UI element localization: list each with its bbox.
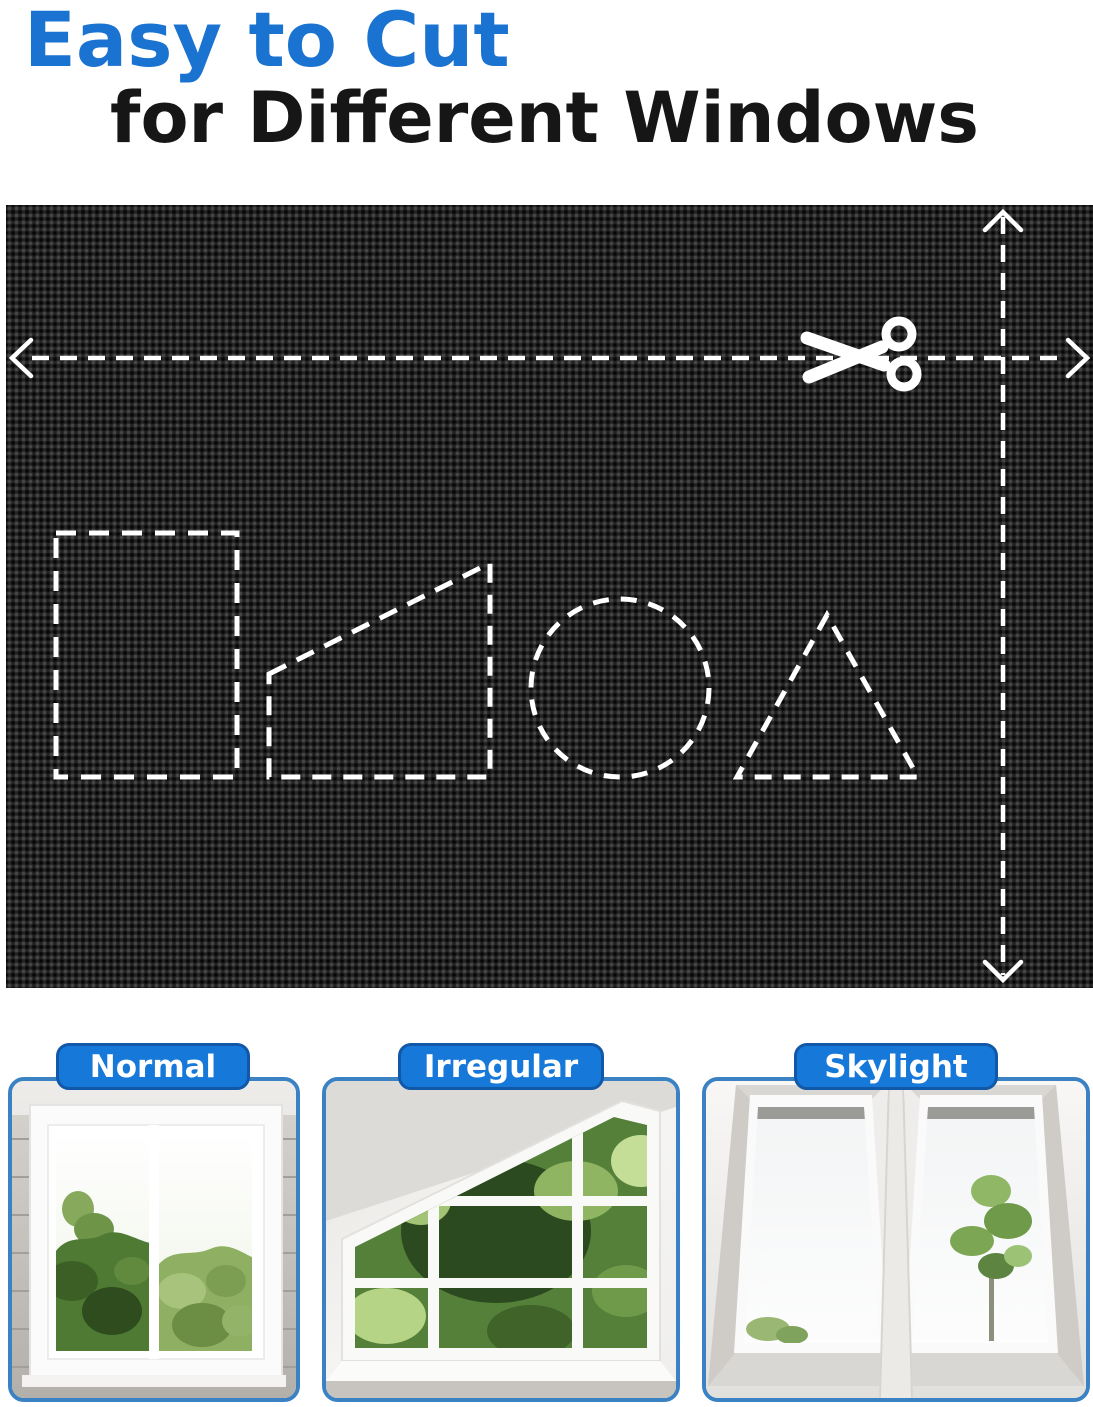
center-mullion — [149, 1125, 159, 1359]
cutout-circle — [531, 599, 709, 777]
skylight-right-glass — [906, 1101, 1056, 1351]
cutout-trapezoid — [269, 563, 490, 777]
card-skylight — [702, 1077, 1090, 1402]
tab-irregular-label: Irregular — [424, 1049, 578, 1085]
skylight-left-glass — [736, 1101, 886, 1351]
scissors-icon — [807, 321, 917, 387]
card-irregular — [322, 1077, 680, 1402]
title-line2: for Different Windows — [110, 76, 979, 160]
tab-skylight: Skylight — [794, 1043, 998, 1090]
normal-window-photo — [12, 1081, 296, 1398]
product-infographic: Easy to Cut for Different Windows — [0, 0, 1093, 1407]
tab-skylight-label: Skylight — [824, 1049, 967, 1085]
arrow-down-icon — [985, 962, 1021, 980]
irregular-window-photo — [326, 1081, 676, 1398]
tab-normal-label: Normal — [90, 1049, 216, 1085]
skylight-photo — [706, 1081, 1086, 1398]
arrow-left-icon — [12, 340, 31, 376]
cutout-triangle — [737, 615, 918, 777]
title-line1: Easy to Cut — [24, 0, 510, 84]
cutout-rectangle — [56, 533, 237, 777]
window-sill — [22, 1375, 286, 1387]
window-sill — [326, 1361, 676, 1381]
floor-strip — [326, 1381, 676, 1398]
tab-normal: Normal — [56, 1043, 250, 1090]
fabric-panel — [6, 205, 1093, 988]
arrow-right-icon — [1068, 340, 1087, 376]
card-normal — [8, 1077, 300, 1402]
tab-irregular: Irregular — [398, 1043, 604, 1090]
foliage-right — [158, 1246, 258, 1351]
cut-guides — [6, 205, 1093, 988]
